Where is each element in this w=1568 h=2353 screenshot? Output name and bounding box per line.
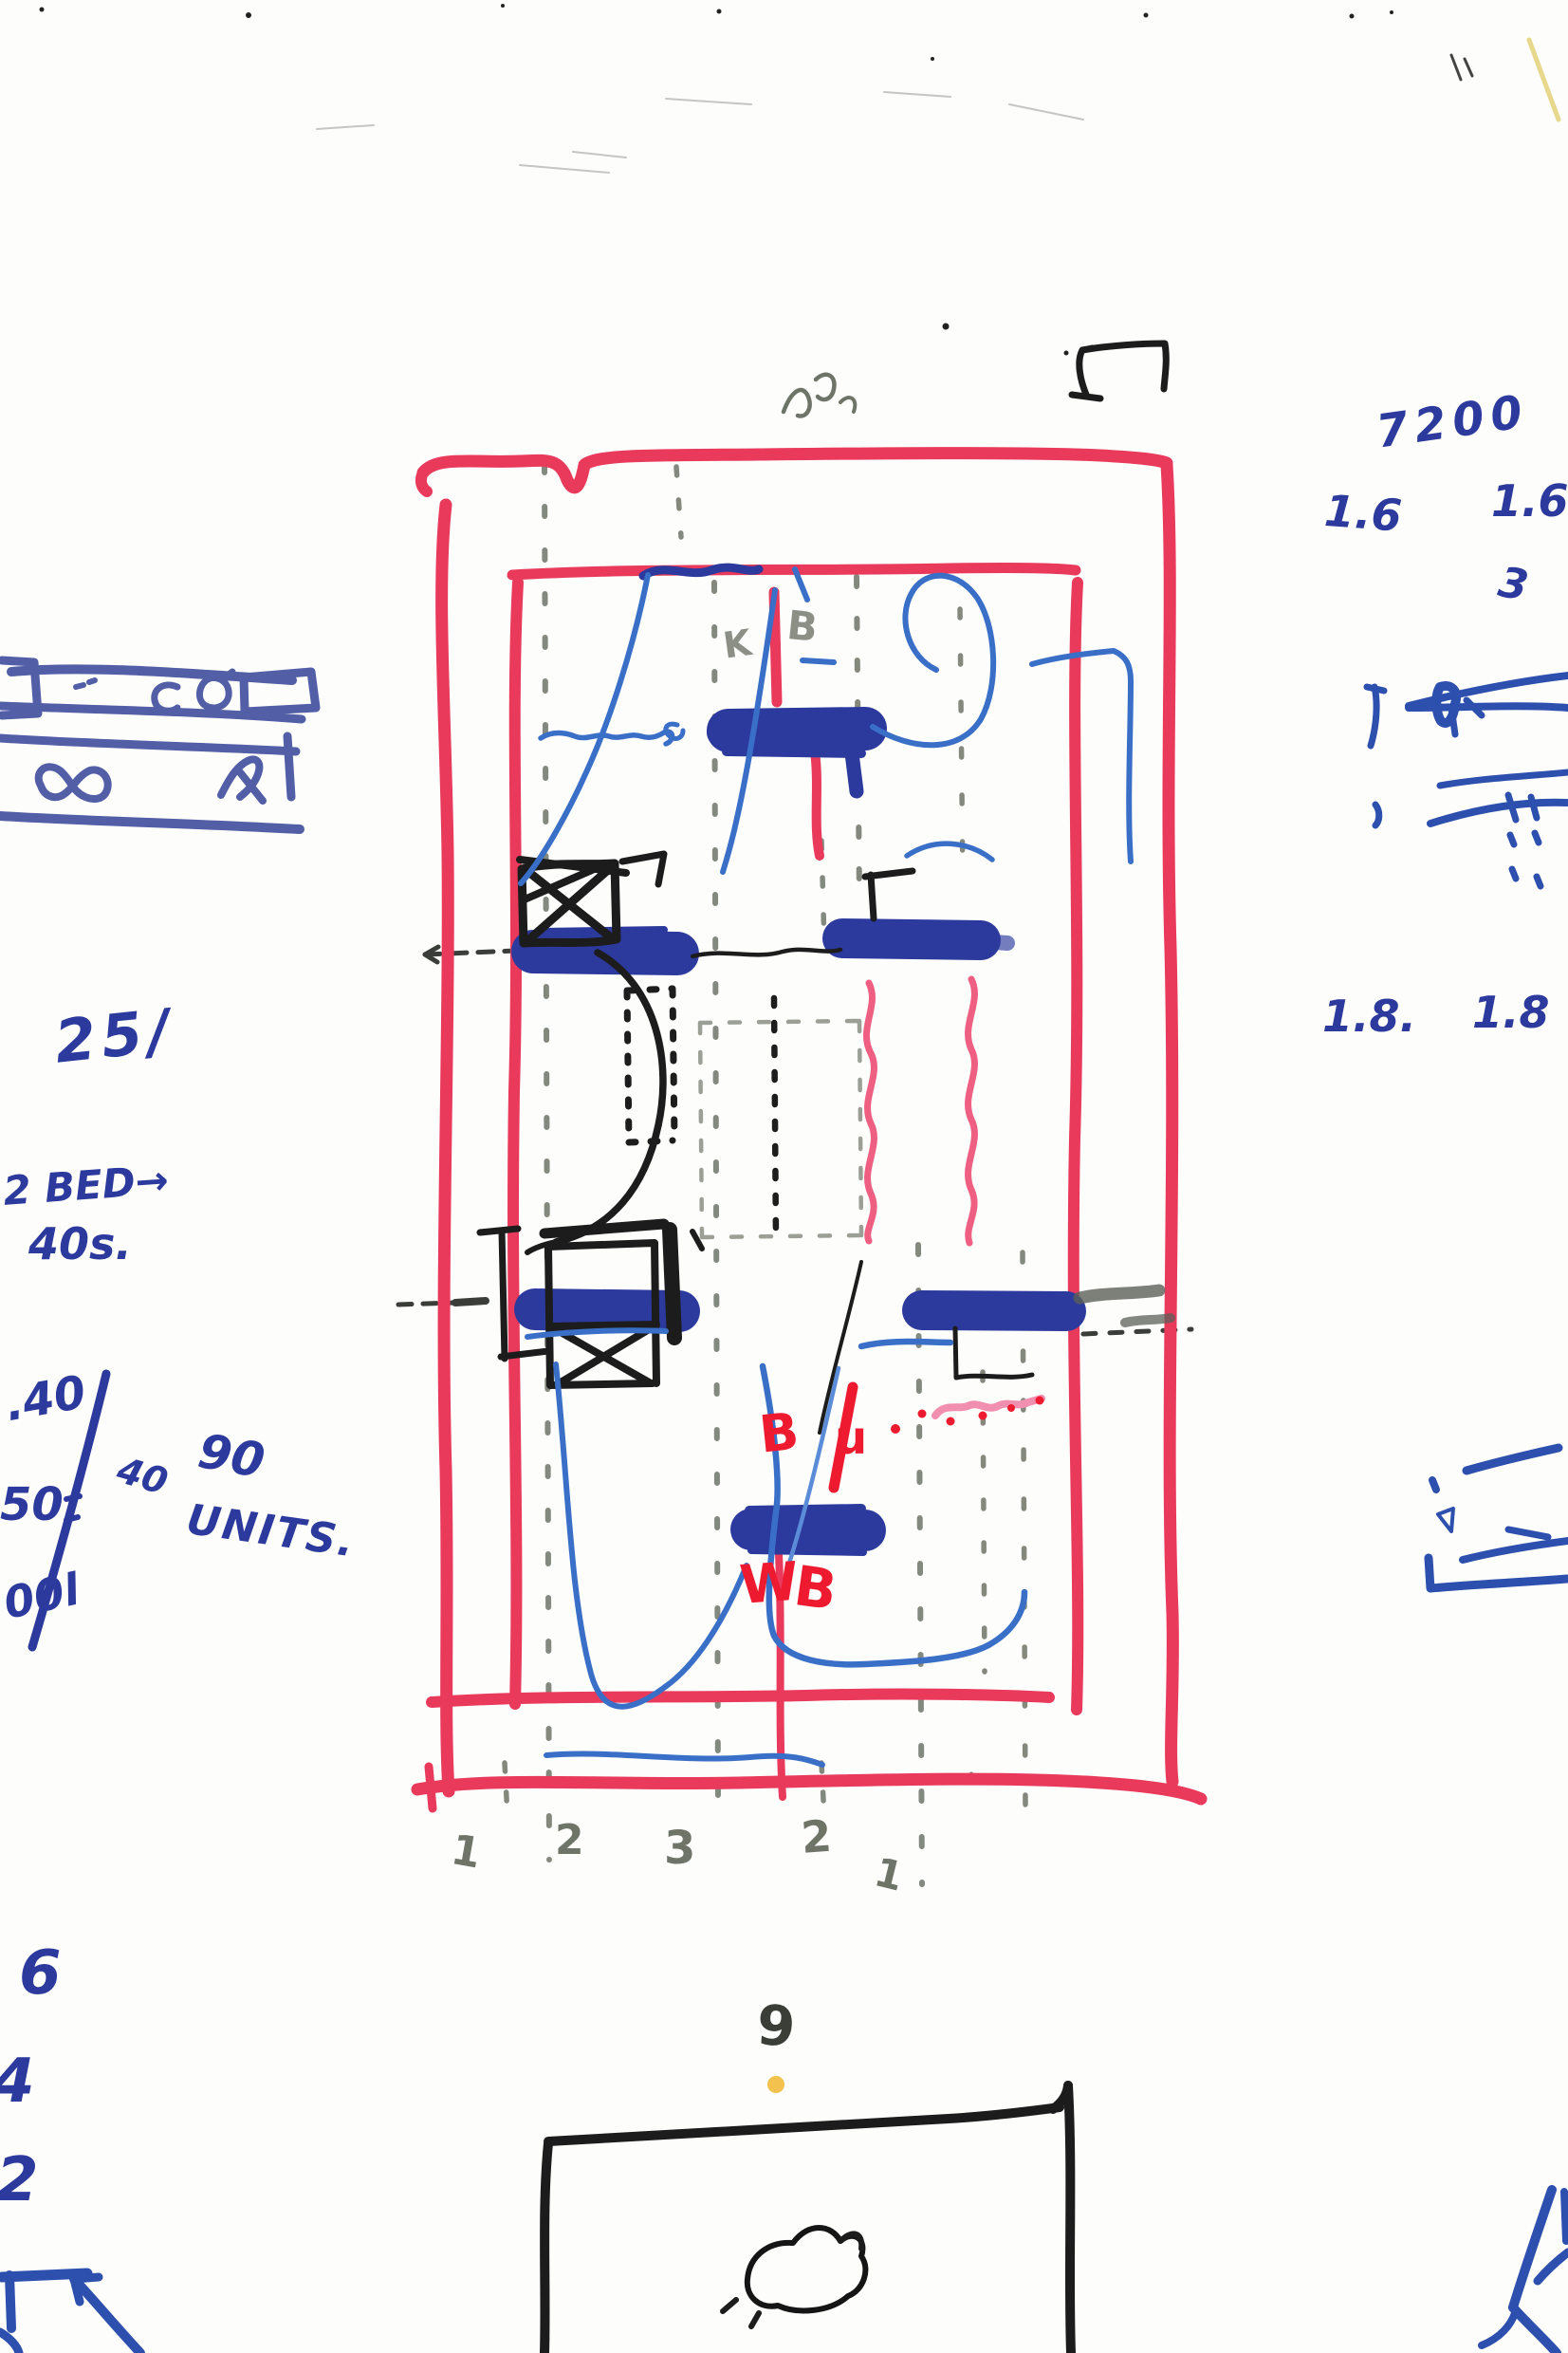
red-note-b-lower: B (791, 1558, 840, 1619)
note-25: 25/ (52, 1001, 178, 1072)
door-swing-arc (556, 953, 663, 1242)
grid-number-3: 3 (664, 1825, 695, 1871)
blue-bar-mid-right (842, 938, 1007, 943)
outer-top-edge (423, 454, 1167, 488)
grid-number-2: 2 (555, 1820, 584, 1862)
blue-bar-lower-left (535, 1305, 687, 1311)
pink-scribble (935, 1399, 1042, 1416)
pencil-note-b: B (785, 605, 820, 648)
note-1-6-left: 1.6 (1323, 489, 1404, 538)
thin-connector-line (692, 950, 840, 956)
pencil-note-k: K (721, 624, 753, 664)
scanned-sketch-page: 7200 1.6 1.6 3 1.8. 1.8 25/ 2 BED→ 40s. … (0, 0, 1568, 2353)
yellow-dot (767, 2076, 784, 2093)
grid-number-2b: 2 (800, 1814, 833, 1860)
note-50: 50 (0, 1482, 64, 1528)
outer-bottom-edge (417, 1779, 1201, 1799)
thin-diagonal (820, 1262, 861, 1433)
dotted-interior-rects (563, 965, 861, 1238)
inner-right-edge (1074, 583, 1078, 1710)
scribble-blob (723, 2228, 865, 2326)
note-1-8-left: 1.8. (1322, 994, 1416, 1038)
red-note-u-upper: u (835, 1416, 867, 1461)
inner-left-edge (513, 583, 518, 1704)
note-6: 6 (19, 1943, 62, 2004)
blue-bar-lower-right (922, 1310, 1066, 1311)
bottom-left-arrow (0, 2273, 140, 2353)
note-90: 90 (194, 1427, 267, 1485)
outer-left-edge (442, 505, 449, 1791)
note-1-6-right: 1.6 (1491, 479, 1568, 523)
note-2-bed: 2 BED→ (2, 1160, 170, 1212)
blue-bar-bottom (749, 1509, 865, 1552)
flag-mark (622, 854, 664, 884)
pencil-squiggles (784, 375, 855, 417)
inner-bottom-edge (432, 1695, 1049, 1702)
corner-mark (865, 871, 913, 918)
gray-smudge (1125, 1318, 1171, 1323)
note-4: 4 (0, 2051, 35, 2112)
bottom-right-shape (1482, 2190, 1568, 2353)
red-wavy-line (968, 979, 975, 1243)
small-open-rectangle-top (1072, 343, 1166, 398)
paper-marks (40, 4, 1568, 356)
black-marker-elements (480, 343, 1171, 2353)
outer-right-edge (1167, 465, 1172, 1782)
crayon-elevation-sketch (0, 660, 316, 829)
infinity-mark (39, 767, 108, 799)
red-note-w-lower: W (738, 1556, 801, 1613)
note-1-8-right: 1.8 (1472, 991, 1550, 1034)
note-dot-40: .40 (2, 1369, 89, 1428)
red-wavy-line (866, 983, 874, 1241)
gray-smudge (1079, 1290, 1159, 1298)
note-2: 2 (0, 2150, 39, 2211)
note-9: 9 (755, 1997, 797, 2055)
red-note-b-upper: B (757, 1406, 802, 1461)
note-40s: 40s. (28, 1222, 132, 1266)
